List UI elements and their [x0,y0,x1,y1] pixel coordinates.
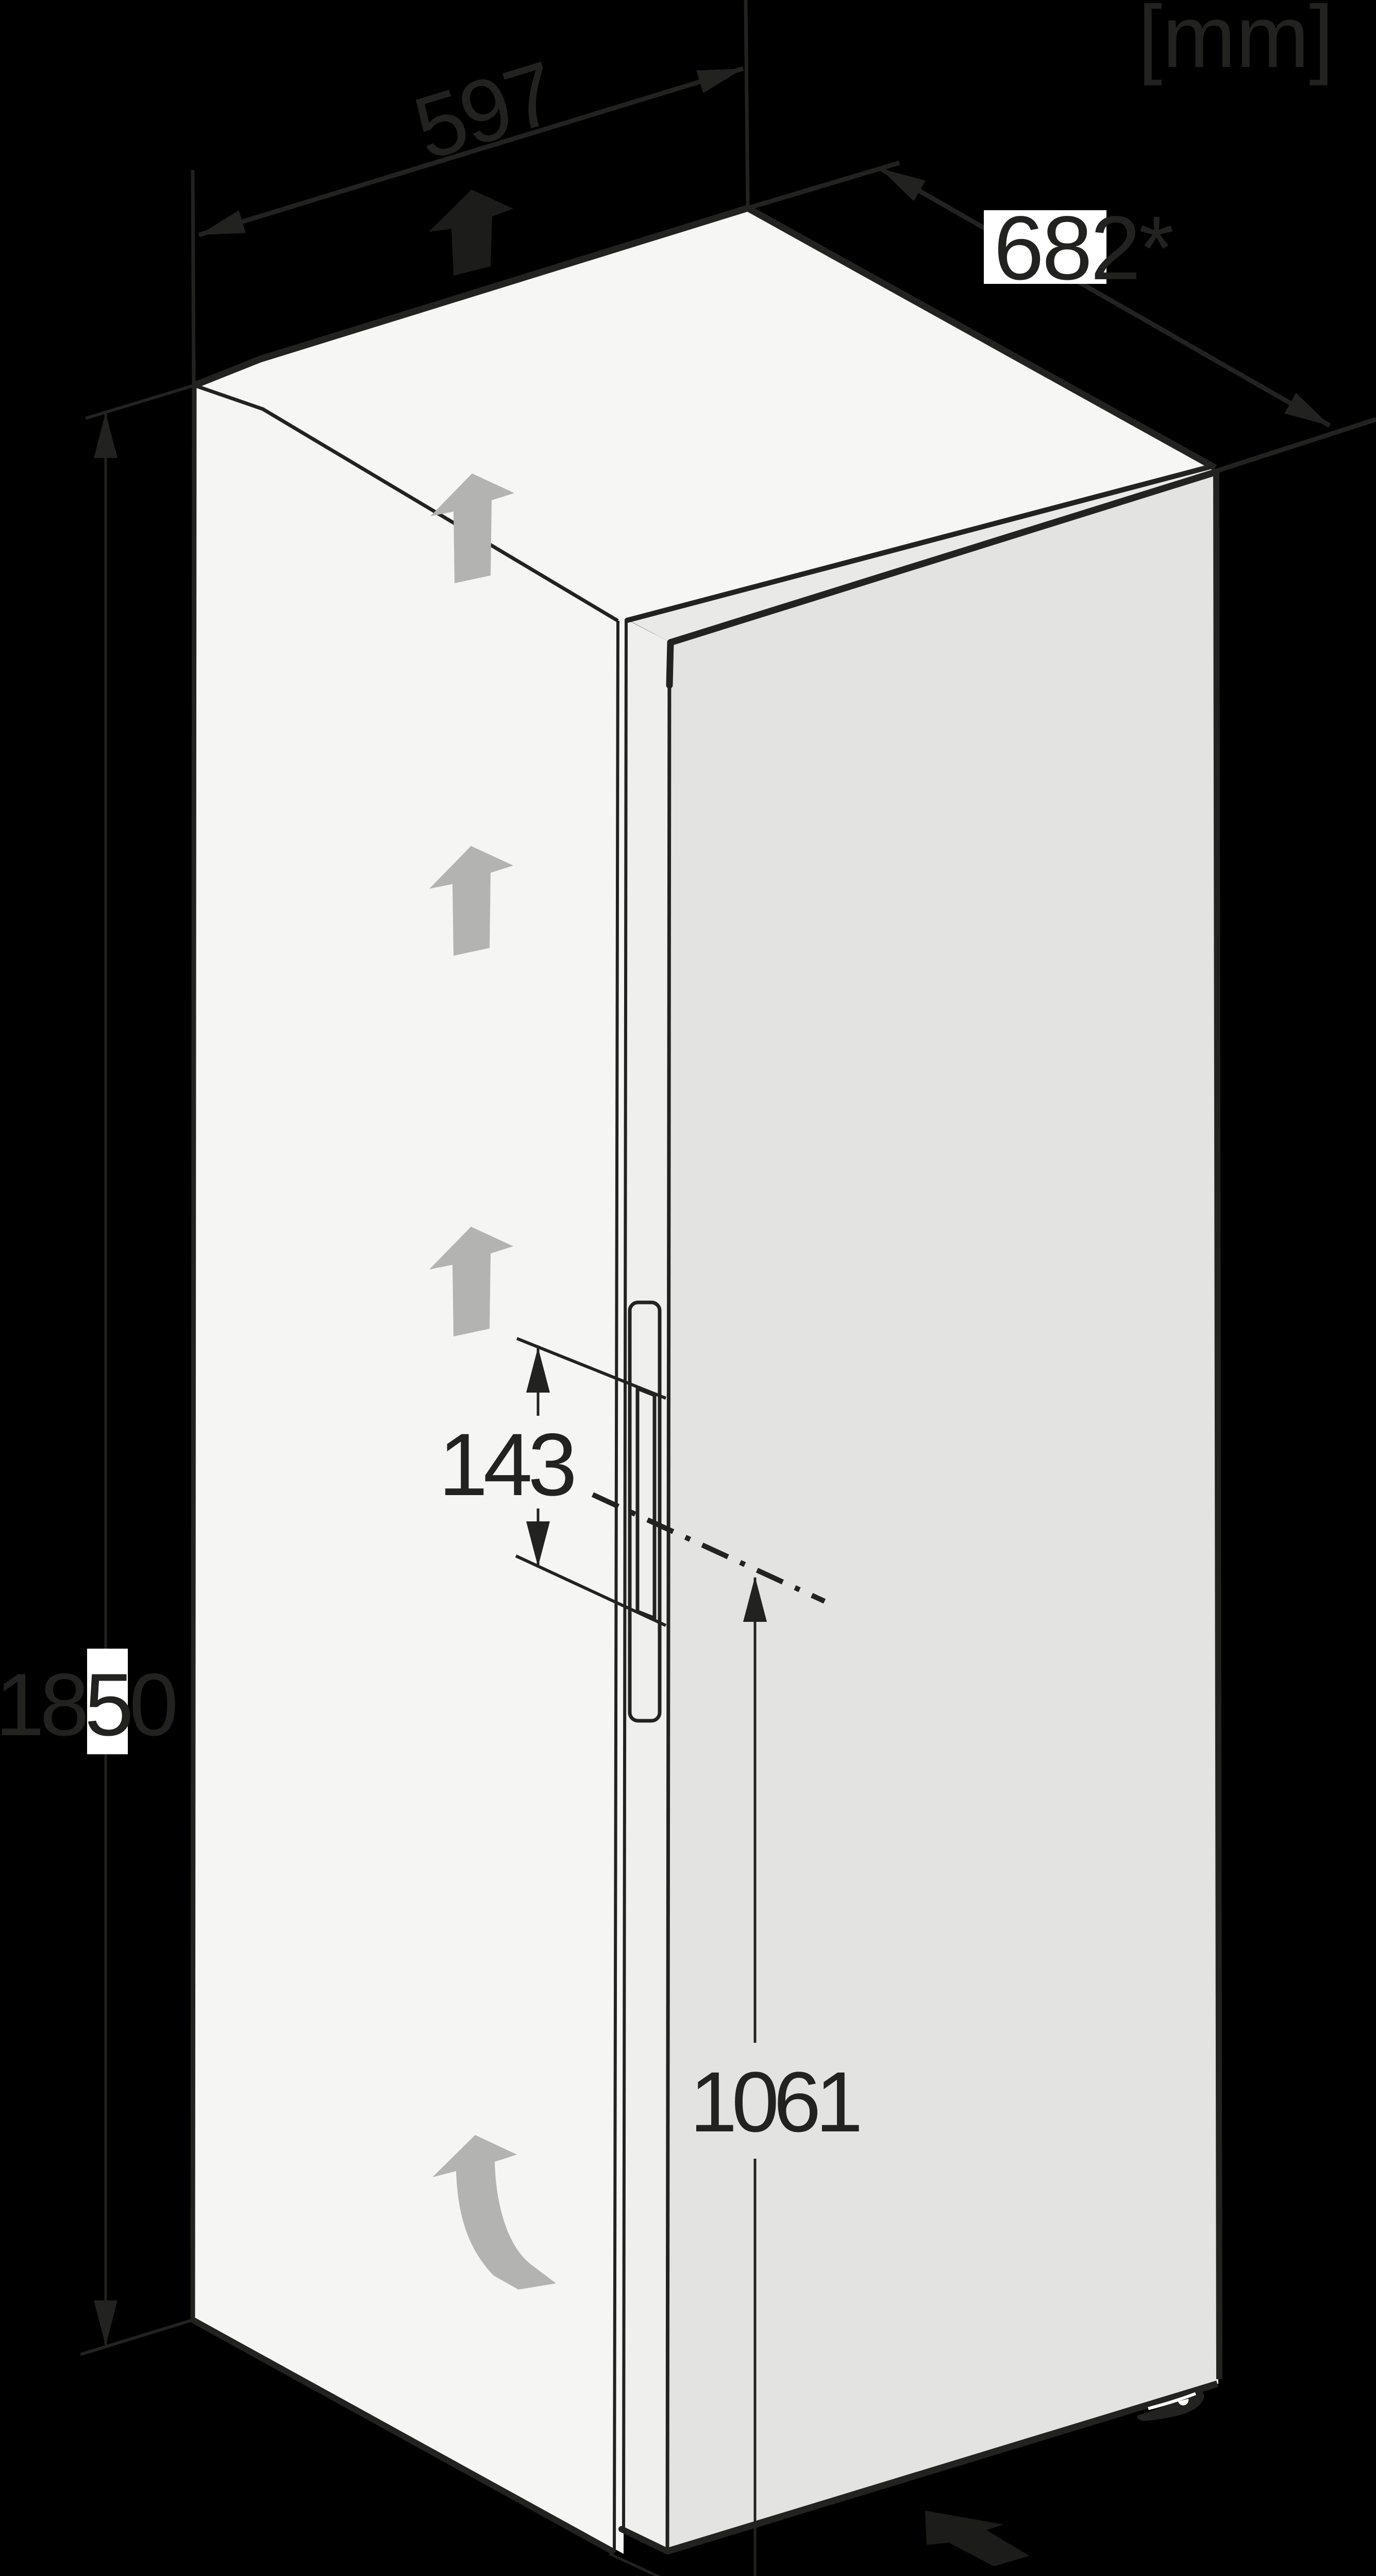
svg-text:[mm]: [mm] [1138,0,1334,86]
svg-text:1850: 1850 [0,1655,175,1754]
svg-text:1061: 1061 [690,2055,859,2150]
svg-text:682*: 682* [994,198,1173,299]
svg-text:143: 143 [439,1415,574,1514]
